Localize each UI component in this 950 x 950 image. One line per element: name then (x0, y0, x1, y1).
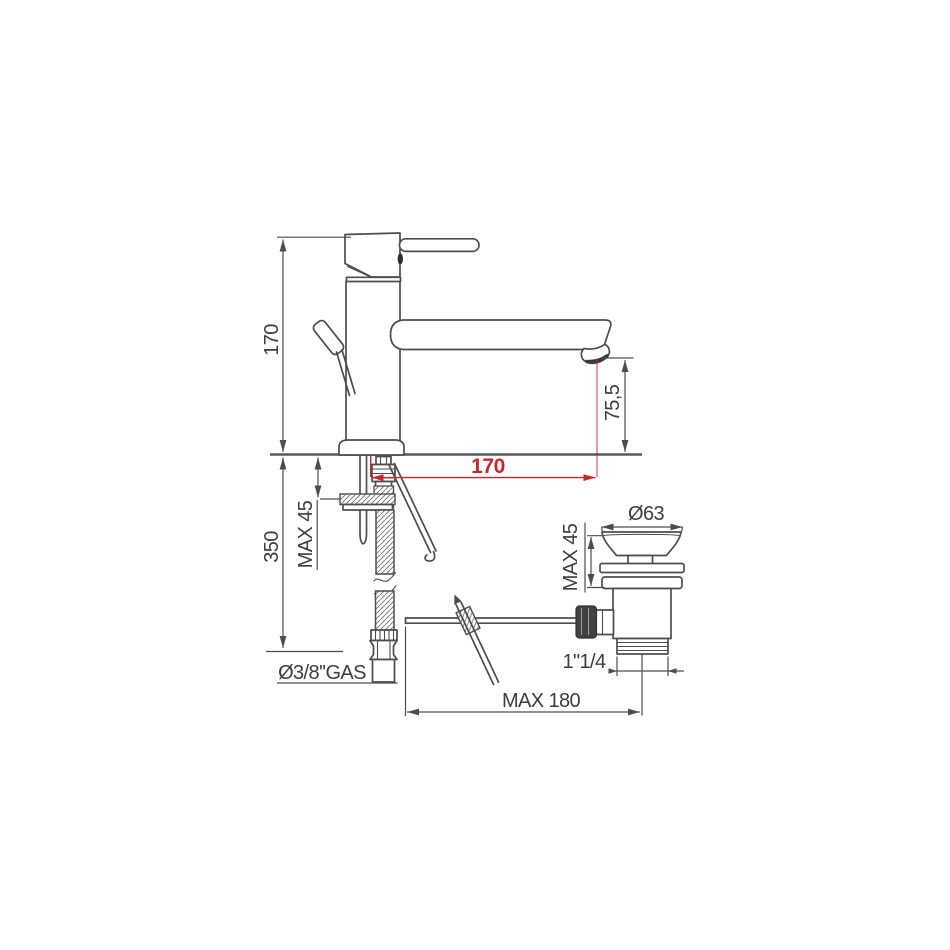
cartridge-head (345, 233, 400, 277)
label-spout-projection: 170 (471, 455, 505, 478)
label-basin-max-thickness: MAX 45 (560, 523, 582, 591)
flexible-hose (370, 510, 398, 682)
waste-body (613, 589, 671, 639)
spout (391, 320, 611, 350)
label-linkage-rod-max: MAX 180 (502, 690, 581, 712)
handle-screw-cover (398, 253, 403, 264)
waste-flange-lower (602, 577, 682, 589)
waste-flange-upper (600, 564, 684, 573)
knurled-nut (576, 606, 597, 638)
popup-waste-assembly (406, 532, 685, 716)
hose-hex-nut (370, 641, 397, 660)
mounting-plate (340, 494, 395, 505)
label-below-deck-depth: 350 (261, 531, 283, 563)
vertical-linkage-rod-2 (461, 602, 499, 682)
technical-drawing-page: 170 350 MAX 45 75,5 170 Ø63 MAX 45 1"1/4… (0, 0, 950, 950)
label-faucet-height: 170 (261, 324, 283, 356)
label-spout-outlet-height: 75,5 (602, 384, 624, 421)
popup-pull-knob (312, 319, 346, 357)
faucet-technical-drawing: 170 350 MAX 45 75,5 170 Ø63 MAX 45 1"1/4… (0, 0, 950, 950)
mounting-plate-lip (343, 505, 393, 511)
lever-handle (400, 239, 480, 252)
faucet-mixer (312, 233, 611, 455)
label-supply-thread: Ø3/8''GAS (278, 662, 366, 684)
label-deck-max-thickness: MAX 45 (295, 500, 317, 568)
waste-side-port (596, 610, 614, 635)
label-waste-cap-diameter: Ø63 (628, 503, 664, 525)
popup-rod-tip (360, 533, 367, 544)
label-waste-thread: 1"1/4 (562, 651, 606, 673)
hose-outlet (373, 660, 395, 683)
rod-direction-arrow (454, 595, 461, 605)
drain-linkage-upper-2 (395, 464, 437, 552)
faucet-body (346, 281, 400, 441)
head-collar (347, 277, 401, 281)
waste-cap (602, 532, 681, 556)
base-flange (339, 440, 404, 455)
under-deck-assembly (340, 456, 436, 682)
